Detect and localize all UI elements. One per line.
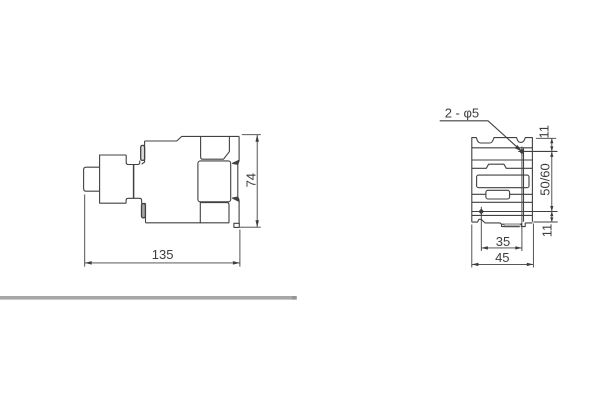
svg-text:45: 45 bbox=[495, 250, 509, 265]
svg-text:135: 135 bbox=[152, 247, 174, 262]
svg-text:50/60: 50/60 bbox=[538, 163, 553, 196]
svg-text:11: 11 bbox=[540, 224, 555, 238]
svg-text:35: 35 bbox=[496, 234, 510, 249]
svg-text:74: 74 bbox=[243, 173, 258, 187]
svg-text:2 - φ5: 2 - φ5 bbox=[445, 105, 479, 120]
svg-text:11: 11 bbox=[537, 125, 552, 139]
